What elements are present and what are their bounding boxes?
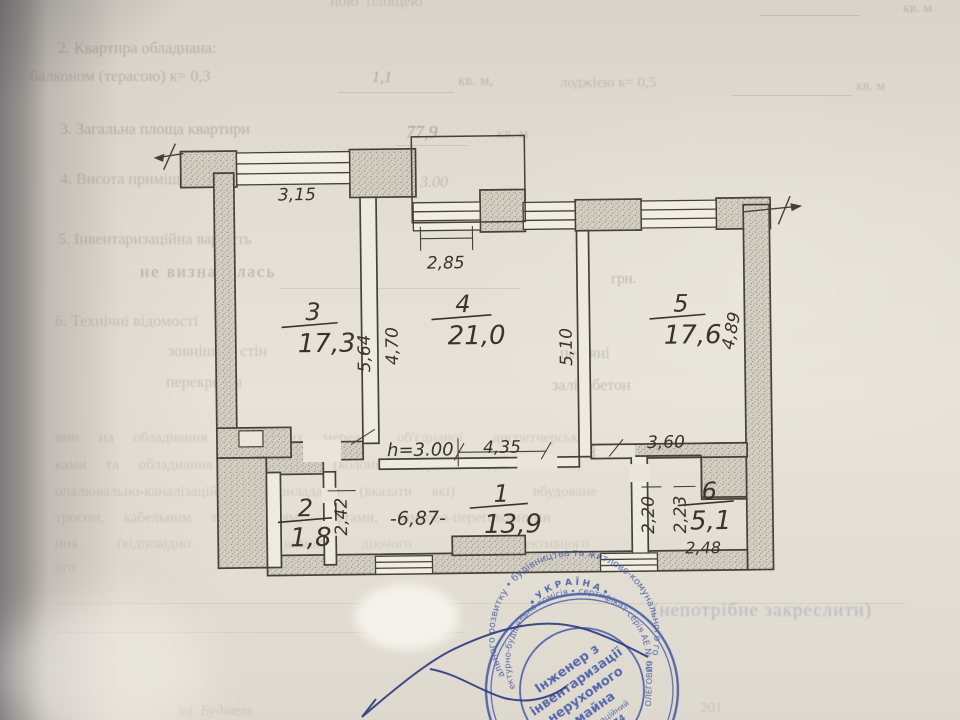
round-stamp: • Міністерство регіонального розвитку • …	[0, 0, 690, 720]
scanned-document-page: ною площею кв. м 2. Квартира обладнана: …	[0, 0, 960, 720]
stamp-ring-text-outer: • Міністерство регіонального розвитку • …	[0, 0, 666, 720]
stamp-ring-text-inner: архітектурно-будівельна комісія • сертиф…	[0, 0, 655, 720]
stamp-name-fragment: ОЛЕГОВИЧ	[644, 661, 655, 707]
stamp-and-signature: • Міністерство регіонального розвитку • …	[0, 0, 960, 720]
